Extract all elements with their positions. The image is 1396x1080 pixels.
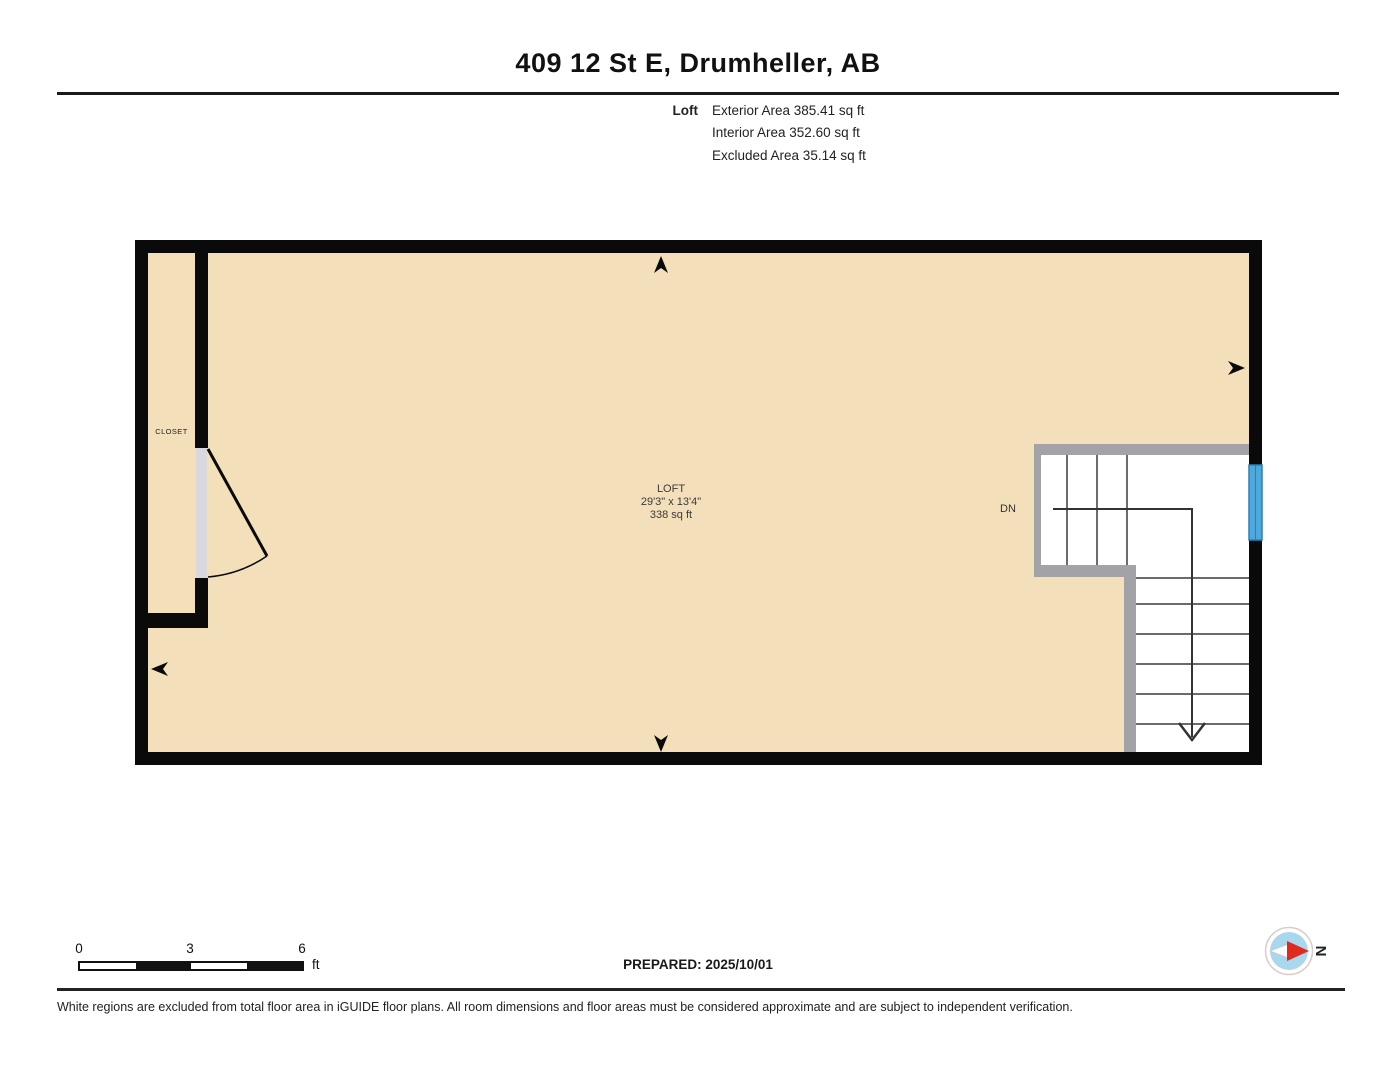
room-area: 338 sq ft	[571, 509, 771, 522]
footer-divider	[57, 988, 1345, 991]
window	[1249, 465, 1262, 540]
stairs-dn-label: DN	[995, 503, 1021, 515]
closet-label: CLOSET	[148, 427, 195, 436]
room-dimensions: 29'3" x 13'4"	[571, 496, 771, 509]
svg-text:N: N	[1312, 946, 1329, 957]
door-opening	[196, 448, 207, 578]
scale-tick-3: 3	[178, 941, 202, 956]
prepared-date: PREPARED: 2025/10/01	[0, 957, 1396, 972]
scale-tick-0: 0	[67, 941, 91, 956]
floorplan-drawing	[0, 0, 1396, 1080]
room-label: LOFT 29'3" x 13'4" 338 sq ft	[571, 483, 771, 522]
footer-disclaimer: White regions are excluded from total fl…	[57, 1000, 1357, 1014]
room-name: LOFT	[571, 483, 771, 496]
compass-icon: N	[1262, 926, 1334, 978]
scale-tick-6: 6	[290, 941, 314, 956]
compass-north-label: N	[1312, 946, 1329, 957]
floorplan-page: 409 12 St E, Drumheller, AB Loft Exterio…	[0, 0, 1396, 1080]
